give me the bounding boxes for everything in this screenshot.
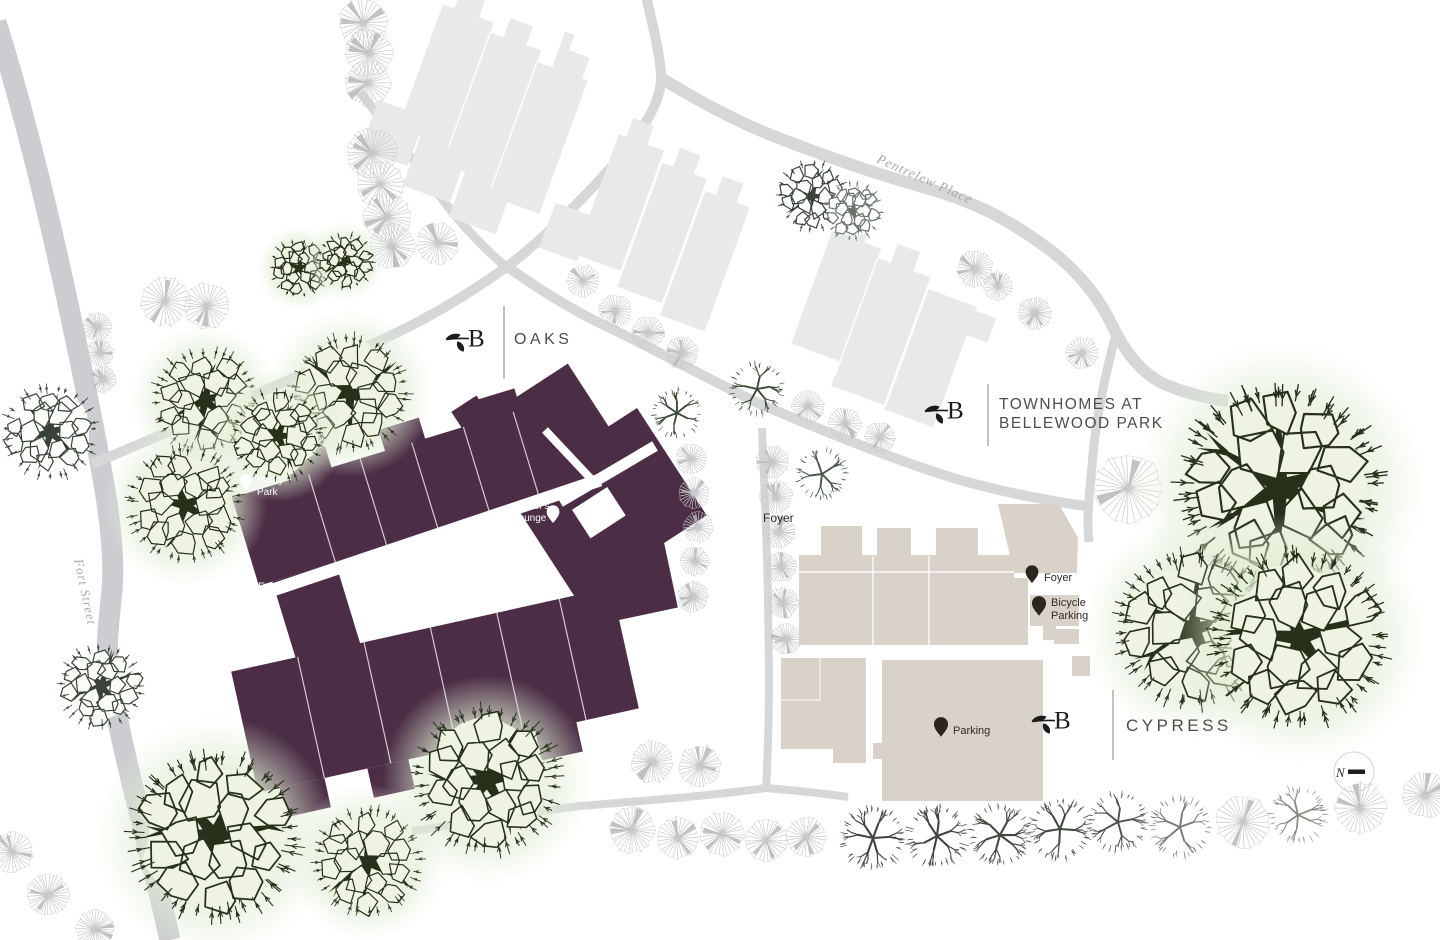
- svg-text:Foyer: Foyer: [1044, 572, 1072, 584]
- svg-text:Owner's: Owner's: [513, 501, 549, 512]
- svg-text:Foyer: Foyer: [763, 511, 794, 525]
- svg-text:Lounge: Lounge: [513, 513, 547, 524]
- svg-text:Foyer: Foyer: [258, 581, 286, 593]
- svg-text:Parking: Parking: [953, 725, 990, 737]
- svg-text:N: N: [1335, 765, 1346, 780]
- svg-text:OAKS: OAKS: [514, 331, 572, 348]
- svg-text:B: B: [1054, 708, 1071, 735]
- svg-text:B: B: [947, 398, 964, 425]
- svg-text:CYPRESS: CYPRESS: [1126, 716, 1232, 735]
- svg-text:Park: Park: [257, 487, 279, 498]
- svg-text:BELLEWOOD PARK: BELLEWOOD PARK: [999, 415, 1164, 432]
- svg-text:Bicycle: Bicycle: [1051, 597, 1086, 609]
- svg-text:Parking: Parking: [1051, 610, 1088, 622]
- svg-text:B: B: [468, 326, 485, 353]
- svg-text:Henry: Henry: [257, 475, 284, 486]
- svg-text:TOWNHOMES AT: TOWNHOMES AT: [999, 396, 1143, 413]
